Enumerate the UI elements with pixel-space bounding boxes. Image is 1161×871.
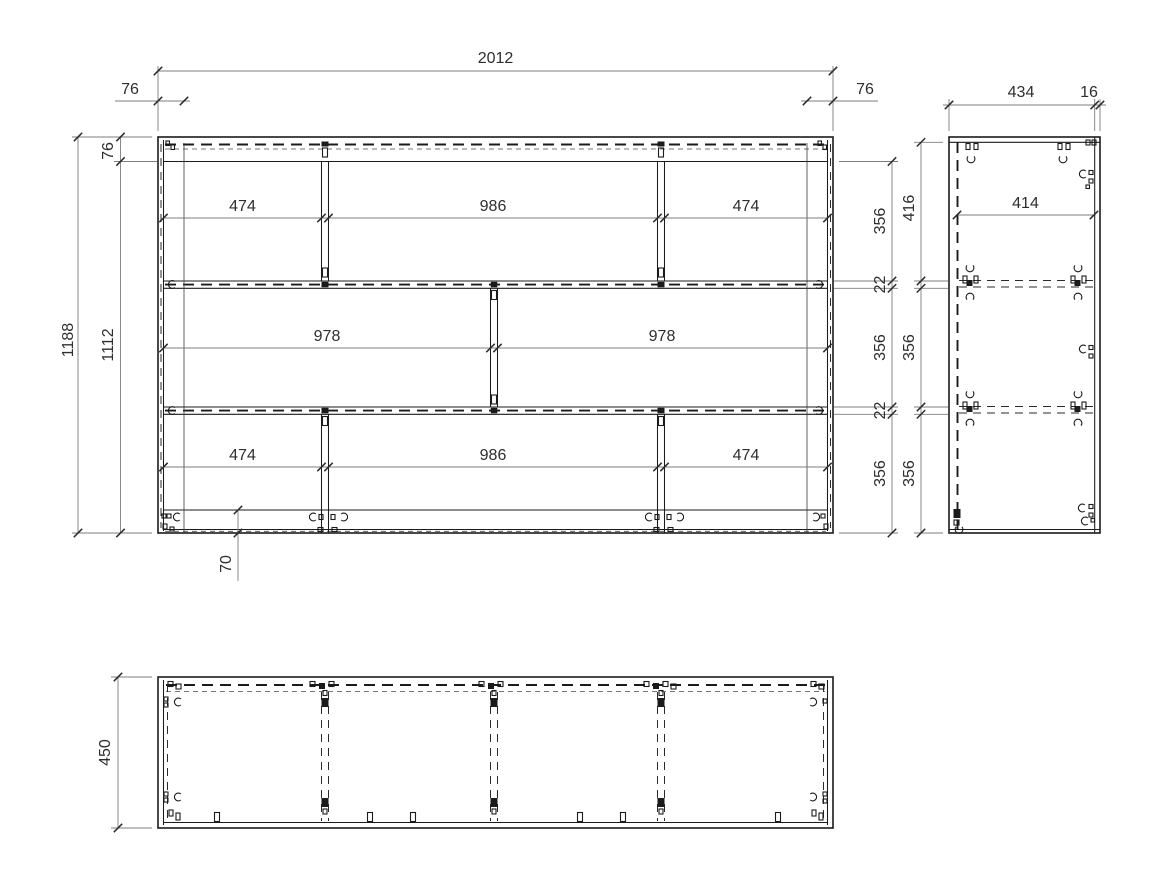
dim-side-inner-depth: 414 bbox=[1012, 195, 1039, 212]
dim-front-bottom-row-right: 474 bbox=[733, 447, 760, 464]
dim-front-edge-offset-right: 76 bbox=[856, 81, 874, 98]
dim-front-top-row-left: 474 bbox=[229, 198, 256, 215]
dim-right-chain-1: 356 bbox=[872, 208, 889, 235]
dim-front-plinth-height: 70 bbox=[218, 555, 235, 573]
dim-side-chain-1: 416 bbox=[901, 195, 918, 222]
dim-front-top-row-center: 986 bbox=[480, 198, 507, 215]
dim-right-chain-2: 22 bbox=[872, 276, 889, 294]
dim-side-chain-3: 356 bbox=[901, 460, 918, 487]
dim-top-overall-depth: 450 bbox=[97, 739, 114, 766]
dim-side-body-depth: 434 bbox=[1008, 84, 1035, 101]
dim-front-overall-width: 2012 bbox=[478, 50, 514, 67]
cabinet-technical-drawing: 2012 76 76 1188 76 1112 474 986 474 978 … bbox=[0, 0, 1161, 871]
dim-right-chain-3: 356 bbox=[872, 334, 889, 361]
dim-front-top-row-right: 474 bbox=[733, 198, 760, 215]
dim-front-middle-row-left: 978 bbox=[314, 328, 341, 345]
dim-side-front-thickness: 16 bbox=[1080, 84, 1098, 101]
top-view bbox=[158, 677, 833, 828]
dim-right-chain-5: 356 bbox=[872, 460, 889, 487]
dim-side-chain-2: 356 bbox=[901, 334, 918, 361]
front-view bbox=[158, 137, 833, 533]
dim-right-chain-4: 22 bbox=[872, 402, 889, 420]
dim-front-bottom-row-left: 474 bbox=[229, 447, 256, 464]
dim-front-inner-height: 1112 bbox=[100, 328, 117, 361]
drawing-canvas: 2012 76 76 1188 76 1112 474 986 474 978 … bbox=[0, 0, 1161, 871]
dim-front-overall-height: 1188 bbox=[60, 323, 77, 358]
dim-front-bottom-row-center: 986 bbox=[480, 447, 507, 464]
dim-front-edge-offset-left: 76 bbox=[121, 81, 139, 98]
dim-front-middle-row-right: 978 bbox=[649, 328, 676, 345]
dim-front-top-rail-height: 76 bbox=[100, 142, 117, 160]
